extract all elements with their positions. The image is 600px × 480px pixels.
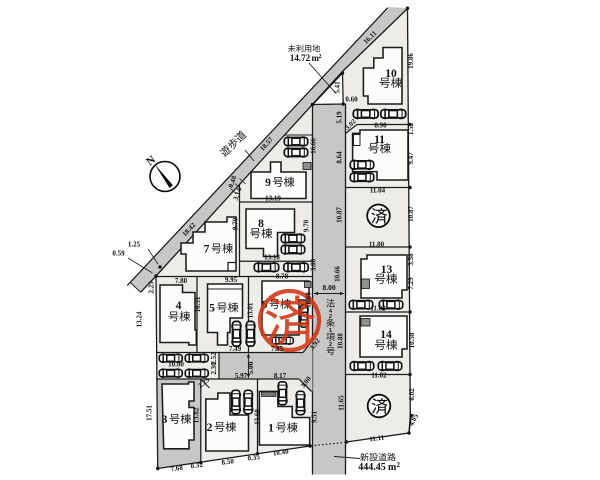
svg-text:11: 11 (374, 134, 385, 146)
svg-text:1.25: 1.25 (128, 241, 141, 249)
svg-text:11.02: 11.02 (371, 372, 387, 380)
svg-text:9.70: 9.70 (232, 217, 240, 230)
svg-text:8.64: 8.64 (336, 151, 344, 164)
svg-text:8: 8 (258, 218, 264, 230)
svg-text:2: 2 (207, 422, 213, 434)
svg-text:5: 5 (209, 303, 215, 315)
svg-text:2.30: 2.30 (210, 362, 218, 375)
svg-text:8.90: 8.90 (374, 122, 387, 130)
svg-text:13.19: 13.19 (265, 195, 281, 203)
svg-text:11.65: 11.65 (338, 395, 346, 411)
svg-text:1: 1 (268, 423, 274, 435)
svg-text:10.51: 10.51 (194, 296, 202, 312)
svg-text:0.59: 0.59 (112, 250, 125, 258)
svg-text:5.00: 5.00 (246, 361, 255, 374)
svg-text:5.19: 5.19 (336, 111, 344, 124)
svg-text:8.00: 8.00 (322, 283, 335, 292)
svg-text:3.00: 3.00 (310, 258, 318, 271)
svg-text:7.85: 7.85 (271, 345, 284, 353)
svg-text:19.86: 19.86 (407, 53, 415, 69)
svg-text:3: 3 (162, 414, 168, 426)
svg-text:10.00: 10.00 (168, 361, 184, 369)
svg-text:7.49: 7.49 (229, 345, 242, 353)
svg-text:14: 14 (380, 329, 392, 341)
svg-text:5.97: 5.97 (235, 372, 248, 380)
svg-text:0.60: 0.60 (345, 96, 358, 104)
svg-text:2: 2 (319, 54, 322, 60)
svg-text:9.70: 9.70 (303, 219, 311, 232)
svg-text:9.47: 9.47 (407, 152, 415, 165)
svg-text:13.82: 13.82 (193, 407, 201, 423)
svg-text:13.60: 13.60 (253, 409, 261, 425)
svg-text:7.29: 7.29 (407, 277, 415, 290)
svg-text:11.02: 11.02 (370, 305, 386, 313)
svg-text:8.17: 8.17 (274, 372, 287, 380)
svg-text:4: 4 (176, 300, 182, 312)
svg-text:7: 7 (204, 244, 210, 256)
svg-text:9.51: 9.51 (311, 410, 319, 423)
svg-text:10.58: 10.58 (408, 332, 416, 348)
svg-text:16.66: 16.66 (310, 138, 318, 154)
svg-text:11.00: 11.00 (369, 241, 385, 249)
svg-text:2: 2 (397, 461, 401, 469)
svg-text:13.18: 13.18 (264, 254, 280, 262)
svg-text:2.25: 2.25 (148, 281, 156, 294)
svg-text:6.02: 6.02 (408, 388, 416, 401)
svg-text:10.87: 10.87 (407, 206, 415, 222)
svg-text:11.04: 11.04 (370, 187, 386, 195)
svg-text:10.68: 10.68 (305, 292, 313, 308)
svg-text:10.66: 10.66 (334, 266, 342, 282)
svg-text:13.01: 13.01 (247, 302, 255, 318)
svg-text:10.87: 10.87 (336, 207, 344, 223)
svg-text:7.80: 7.80 (175, 277, 188, 285)
svg-text:9.95: 9.95 (225, 276, 238, 284)
svg-text:5.41: 5.41 (334, 81, 342, 94)
svg-text:8.78: 8.78 (276, 273, 289, 281)
svg-text:3.58: 3.58 (407, 253, 415, 266)
svg-text:13.24: 13.24 (136, 311, 144, 327)
svg-text:9: 9 (265, 177, 271, 189)
svg-text:10.88: 10.88 (337, 333, 345, 349)
svg-text:14.72: 14.72 (290, 53, 311, 63)
svg-text:444.45: 444.45 (358, 462, 386, 473)
svg-text:17.51: 17.51 (146, 405, 154, 421)
